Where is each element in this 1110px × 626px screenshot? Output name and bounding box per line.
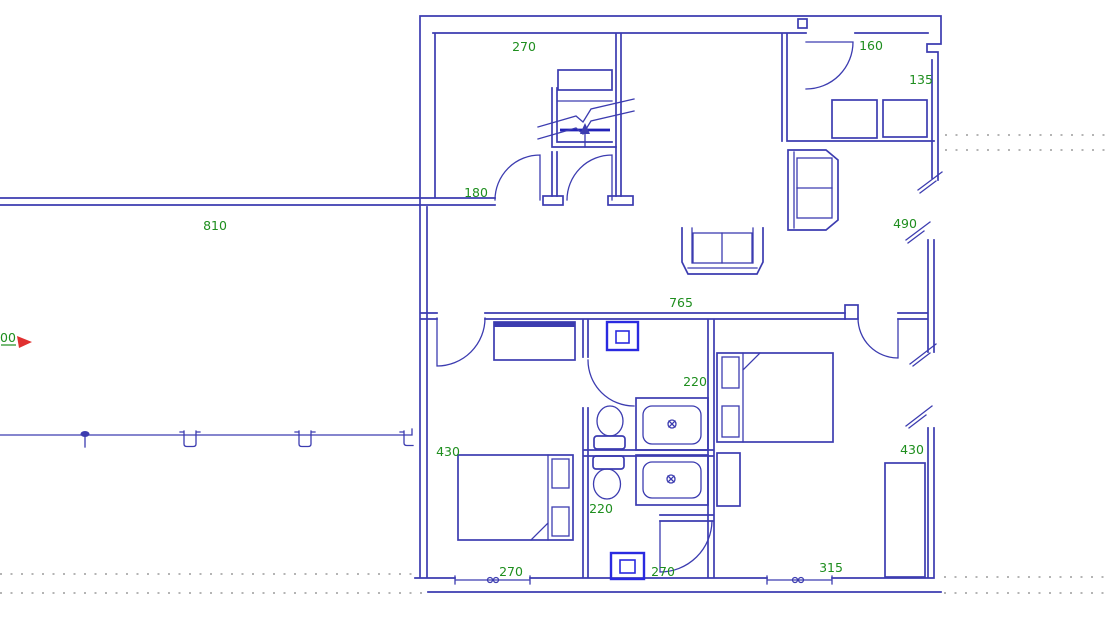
toilet-tank [594, 436, 625, 449]
door-bathroom-upper [588, 360, 634, 406]
dim-window-right-upper: 490 [893, 216, 917, 231]
armchair [788, 150, 838, 230]
fence [0, 429, 413, 447]
dim-hall: 270 [512, 39, 536, 54]
bed-outline [458, 455, 573, 540]
blanket-fold [743, 353, 760, 442]
washing-machine-upper [607, 322, 638, 350]
nightstand [717, 453, 740, 506]
sofa-details [688, 228, 757, 268]
reference-line-bottom-right [944, 577, 1110, 593]
door-bedroom-left [437, 318, 485, 366]
appliance-inner [620, 560, 635, 573]
walls [0, 16, 941, 592]
toilet-bowl [597, 406, 623, 436]
dim-bath-upper: 220 [683, 374, 707, 389]
fence-line [0, 429, 412, 435]
pillow [722, 357, 739, 388]
door-hall-left [495, 155, 540, 200]
bed-right [717, 353, 833, 442]
sink-basin [643, 406, 701, 444]
wardrobe [885, 463, 925, 577]
doors [437, 42, 898, 572]
sofa [682, 228, 763, 274]
appliance-outline [607, 322, 638, 350]
toilet-bowl [594, 469, 621, 499]
reference-line-bottom-left [0, 574, 428, 593]
bench-seat-1 [832, 100, 877, 138]
origin-marker-arrow-icon [17, 336, 32, 348]
drawing-canvas[interactable]: 2701601351808104907652204302204302702703… [0, 0, 1110, 626]
wall-lines [0, 16, 941, 592]
sink-drain-cross [669, 421, 675, 427]
dimension-labels: 2701601351808104907652204302204302702703… [203, 38, 933, 579]
tv-cabinet-back [494, 322, 575, 327]
door-jamb-post [543, 196, 563, 205]
armchair-details [794, 152, 832, 228]
wall-step-block [845, 305, 858, 319]
dim-entry-side: 135 [909, 72, 933, 87]
pillow [552, 459, 569, 488]
sink-drain-cross [668, 476, 674, 482]
dim-window-bottom-right: 315 [819, 560, 843, 575]
washing-machine-lower [611, 553, 644, 579]
toilet-upper [594, 406, 625, 449]
toilet-lower [593, 456, 624, 499]
reference-line-right-upper [945, 135, 1110, 150]
blanket-fold [531, 455, 548, 540]
tv-cabinet-outline [494, 322, 575, 360]
appliance-outline [611, 553, 644, 579]
door-hinge-post [798, 19, 807, 28]
reference-lines [0, 135, 1110, 593]
dim-long-wall: 810 [203, 218, 227, 233]
bed-left [458, 455, 573, 540]
origin-marker: 00 [0, 330, 32, 348]
pillow [552, 507, 569, 536]
dim-bedroom-right: 430 [900, 442, 924, 457]
bed-outline [717, 353, 833, 442]
fence-post-4 [400, 431, 413, 446]
bench-seat-2 [883, 100, 927, 137]
pillow [722, 406, 739, 437]
door-bedroom-right [858, 318, 898, 358]
floor-plan-canvas: 2701601351808104907652204302204302702703… [0, 0, 1110, 626]
sink-upper [636, 398, 708, 450]
door-hall-right [567, 155, 612, 200]
staircase [538, 70, 634, 147]
dim-window-bottom-left: 270 [499, 564, 523, 579]
door-entry [806, 42, 853, 89]
sink-lower [636, 455, 708, 505]
toilet-tank [593, 456, 624, 469]
tv-cabinet [494, 322, 575, 360]
dim-entry-door: 160 [859, 38, 883, 53]
stair-landing [558, 70, 612, 90]
dim-living-wall: 765 [669, 295, 693, 310]
fence-post-2 [180, 431, 200, 447]
dim-hall-door: 180 [464, 185, 488, 200]
fence-post-3 [295, 431, 315, 447]
window-break-symbols [906, 172, 942, 428]
dim-bedroom-left: 430 [436, 444, 460, 459]
dim-bath-lower: 220 [589, 501, 613, 516]
appliance-inner [616, 331, 629, 343]
origin-marker-label: 00 [0, 330, 16, 345]
dim-laundry: 270 [651, 564, 675, 579]
